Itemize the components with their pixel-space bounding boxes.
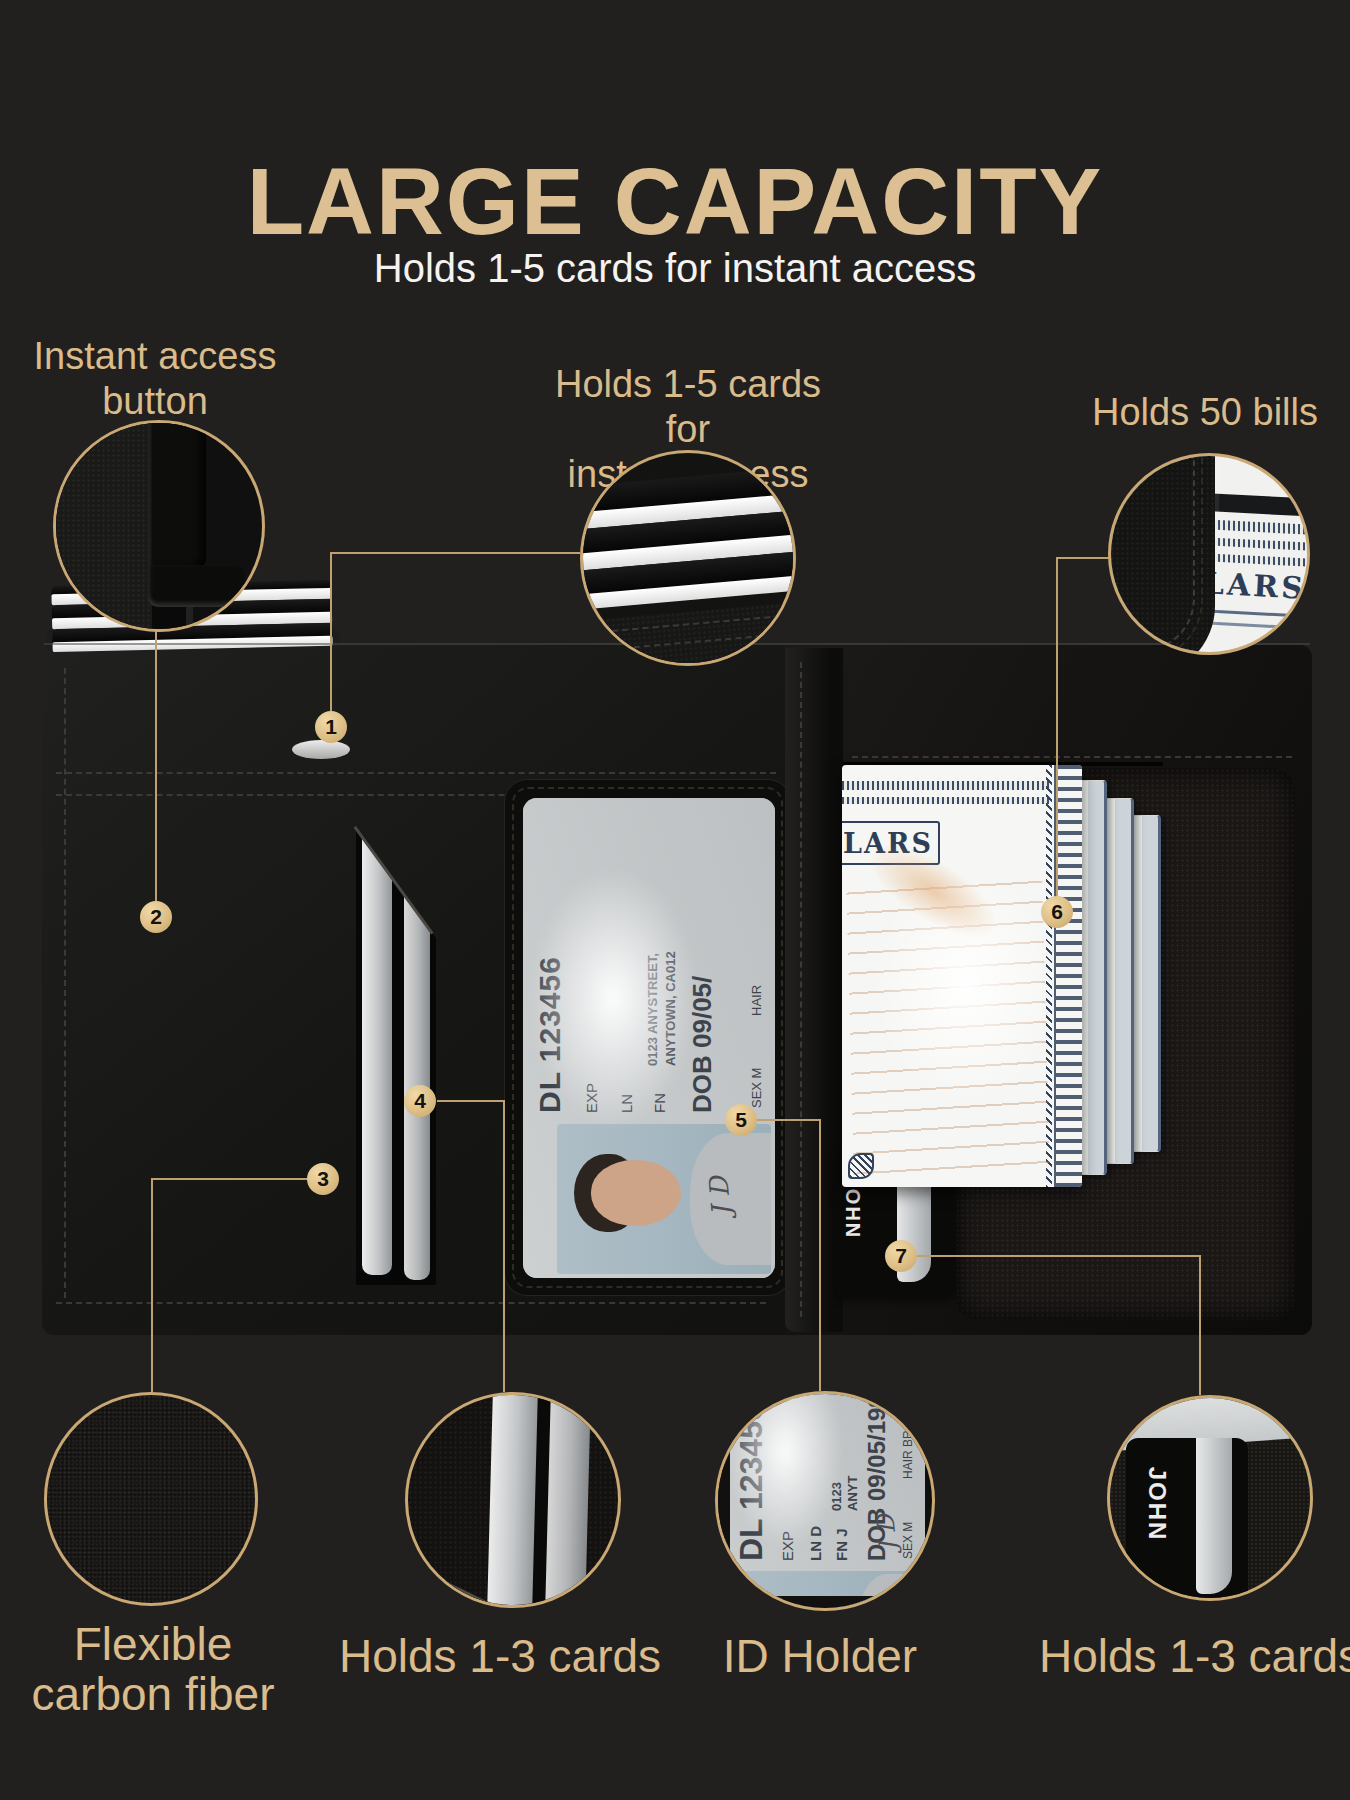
label-holds-1-3-cards-left: Holds 1-3 cards [330,1632,670,1682]
leader-line-5-h [757,1119,821,1121]
stitch-line [56,1302,766,1304]
id-window: DL 123456 EXP LN FN 0123 ANYSTREET, ANYT… [523,798,775,1278]
magnifier-cards-detail [580,450,796,666]
stitch-line [64,668,66,1298]
bill-border-stripe [842,797,1050,804]
leader-line-6-v [1056,557,1058,897]
leather-rim [718,1596,932,1608]
leather-texture [47,1395,255,1603]
magnifier-carbon-detail [44,1392,258,1606]
stitch-line [56,772,776,774]
marker-1: 1 [315,711,347,743]
leader-line-5-v [819,1119,821,1391]
label-line: button [0,379,310,424]
slot-shadow [1207,493,1310,517]
id-sex: SEX M [749,1068,764,1108]
label-line: Flexible [8,1620,298,1670]
label-line: carbon fiber [8,1670,298,1720]
bill-line [1203,609,1307,617]
leader-line-1-h [331,552,580,554]
leader-line-4-v [503,1100,505,1392]
magnifier-bills-detail: LARS SS [1108,453,1310,655]
marker-4: 4 [404,1085,436,1117]
id-hair: HAIR [749,985,764,1016]
marker-6: 6 [1041,896,1073,928]
stitch-line [800,662,802,1317]
card-edge [545,1392,591,1608]
leader-line-7-h [917,1255,1201,1257]
bill-border-stripe [1203,553,1310,567]
magnifier-slot-detail [405,1392,621,1608]
id-card-detail: DL 123456789 EXP LN D FN J 0123 ANYT DOB… [725,1391,925,1611]
stitch-line [1108,453,1203,655]
card-edge [487,1392,539,1608]
bill-serrated-border [1054,765,1082,1187]
label-id-holder: ID Holder [660,1632,980,1682]
magnifier-id-detail: DL 123456789 EXP LN D FN J 0123 ANYT DOB… [715,1391,935,1611]
label-flexible-carbon-fiber: Flexible carbon fiber [8,1620,298,1719]
label-instant-access-button: Instant access button [0,334,310,424]
page-title: LARGE CAPACITY [0,148,1350,256]
stitch-line [852,756,1292,758]
glare [523,858,703,1138]
marker-7: 7 [885,1240,917,1272]
bill-line [1203,621,1307,629]
john-card-detail: JOHN [1126,1438,1248,1601]
john-card-name: JOHN [1143,1467,1171,1542]
magnifier-john-card-detail: JOHN [1107,1395,1313,1601]
bill-border-stripe [1203,519,1310,535]
infographic-page: LARGE CAPACITY Holds 1-5 cards for insta… [0,0,1350,1800]
bill-front: LARS [842,765,1082,1187]
leader-line-4-h [437,1100,505,1102]
id-photo-shirt [856,1574,921,1611]
id-signature: J D [703,1175,736,1217]
bill-denomination-text: LARS [1202,565,1307,605]
leader-line-3-h [152,1178,307,1180]
leader-line-2 [155,626,157,901]
access-button-detail [148,420,206,573]
id-address2: ANYT [845,1476,860,1511]
id-sex: SEX M [901,1522,915,1559]
stitch-line [591,614,790,633]
label-holds-1-3-cards-right: Holds 1-3 cards [1030,1632,1350,1682]
label-holds-50-bills: Holds 50 bills [1050,390,1350,435]
page-subtitle: Holds 1-5 cards for instant access [0,246,1350,291]
leader-line-1-v [330,552,332,711]
leather-rim [718,1394,730,1608]
id-signature: J D [871,1513,902,1552]
marker-3: 3 [307,1163,339,1195]
label-line: Holds 1-5 cards for [533,362,843,452]
id-photo [557,1124,771,1274]
leader-line-3-v [151,1178,153,1392]
id-hair: HAIR BR [901,1430,915,1479]
id-photo-face [591,1160,681,1226]
id-card: DL 123456 EXP LN FN 0123 ANYSTREET, ANYT… [523,798,775,1278]
leader-line-7-v [1199,1255,1201,1395]
access-button-foot [148,565,248,607]
marker-2: 2 [140,901,172,933]
leather-corner [1108,453,1215,655]
bill-border-stripe [1203,537,1310,551]
marker-5: 5 [725,1104,757,1136]
magnifier-button-detail [53,420,265,632]
john-card-silver-band [1196,1438,1232,1594]
glare [725,1391,845,1551]
fanned-cards [580,467,796,611]
bill-border-stripe [842,781,1050,790]
instant-access-button [292,740,350,759]
bill-corner-ornament [848,1153,874,1179]
leader-line-6-h [1057,557,1110,559]
label-line: Instant access [0,334,310,379]
